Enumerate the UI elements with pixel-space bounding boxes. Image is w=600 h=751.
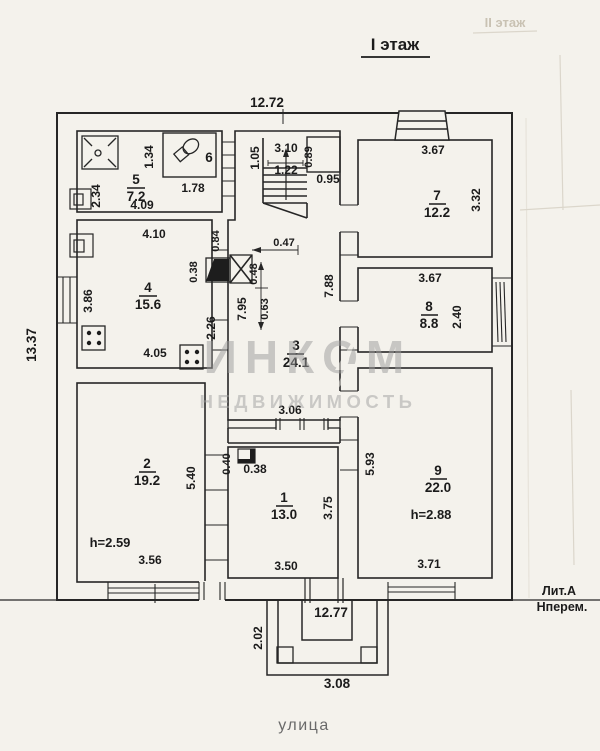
dim-r6-left: 1.34 — [142, 145, 156, 169]
building-letter-label: Лит.А — [542, 584, 576, 598]
shower-tray — [82, 136, 118, 169]
dim-stair-closet: 0.95 — [316, 172, 340, 186]
room-7-number: 7 — [433, 188, 441, 203]
window-room9-bottom — [388, 582, 455, 600]
door-openings-right-wing — [338, 205, 360, 417]
sink-room5 — [70, 189, 91, 209]
room-9-number: 9 — [434, 463, 442, 478]
dim-r9-left: 5.93 — [363, 452, 377, 476]
dim-furnace-front: 0.38 — [188, 261, 200, 282]
dim-r1-bottom: 3.50 — [274, 559, 298, 573]
dim-overall-top: 12.72 — [250, 95, 284, 110]
dim-r2-bottom: 3.56 — [138, 553, 162, 567]
room-5-number: 5 — [132, 172, 140, 187]
dim-r8-right: 2.40 — [450, 305, 464, 329]
dim-r5-bottom: 4.09 — [130, 198, 154, 212]
dim-r4-left: 3.86 — [81, 289, 95, 313]
stove-symbol-1 — [82, 326, 105, 350]
dim-r8-top: 3.67 — [418, 271, 442, 285]
dim-furnace-side: 0.48 — [248, 263, 260, 284]
dim-r1-flue-h: 0.40 — [221, 453, 233, 474]
dim-r1-flue-w: 0.38 — [243, 462, 267, 476]
dim-stair-run: 1.22 — [274, 163, 298, 177]
dim-r3-left-wall: 7.95 — [235, 297, 249, 321]
dim-r7-top: 3.67 — [421, 143, 445, 157]
toilet — [173, 136, 202, 163]
room-9-area: 22.0 — [425, 480, 451, 495]
room-2-number: 2 — [143, 456, 151, 471]
street-label: улица — [278, 717, 329, 734]
room-1-area: 13.0 — [271, 507, 297, 522]
room-6-number: 6 — [205, 150, 213, 165]
dim-r3-right-wall: 7.88 — [322, 274, 336, 298]
porch-post-right — [361, 647, 377, 663]
opening-room1-bottom — [199, 581, 225, 601]
dim-stair-hall: 1.05 — [248, 146, 262, 170]
room-7-area: 12.2 — [424, 205, 450, 220]
dim-furnace-depth: 0.47 — [273, 237, 294, 249]
furnace — [206, 245, 298, 330]
dim-furnace-back: 0.63 — [259, 298, 271, 319]
room-2-area: 19.2 — [134, 473, 160, 488]
bleed-page-title: II этаж — [485, 15, 526, 30]
window-left-wall — [57, 277, 77, 323]
page-title: I этаж — [371, 35, 420, 54]
fixture-room4 — [70, 234, 93, 257]
scanned-floor-plan-sheet: I этаж II этаж 12.72 13.37 2.34 5 7.2 4.… — [0, 0, 600, 751]
dim-r9-bottom: 3.71 — [417, 557, 441, 571]
dim-stair-side: 0.89 — [303, 146, 315, 167]
dim-porch-width: 3.08 — [324, 676, 351, 691]
room-2-ceiling-height: h=2.59 — [90, 535, 131, 550]
watermark-brand: ИНКОМ — [204, 331, 412, 383]
room-4-number: 4 — [144, 280, 152, 295]
dim-r6-bottom: 1.78 — [181, 181, 205, 195]
watermark-subtitle: НЕДВИЖИМОСТЬ — [200, 391, 417, 412]
dim-stair-top: 3.10 — [274, 141, 298, 155]
dim-r2-right: 5.40 — [184, 466, 198, 490]
room-4-area: 15.6 — [135, 297, 162, 312]
room-8-area: 8.8 — [420, 316, 439, 331]
room1-flue — [238, 449, 255, 463]
floor-plan-drawing: I этаж II этаж 12.72 13.37 2.34 5 7.2 4.… — [0, 0, 600, 751]
dim-r4-top: 4.10 — [142, 227, 166, 241]
room-8-number: 8 — [425, 299, 433, 314]
dim-r4-bottom: 4.05 — [143, 346, 167, 360]
dim-overall-left: 13.37 — [24, 328, 39, 362]
porch-post-left — [277, 647, 293, 663]
room-9-ceiling-height: h=2.88 — [411, 507, 452, 522]
dim-r1-right: 3.75 — [321, 496, 335, 520]
watermark: ИНКОМ НЕДВИЖИМОСТЬ — [200, 331, 417, 412]
roof-flue — [395, 111, 449, 140]
dim-overall-bottom: 12.77 — [314, 605, 348, 620]
corridor — [228, 418, 340, 443]
dim-r5-left: 2.34 — [89, 184, 103, 208]
dim-furnace-wall: 0.84 — [210, 229, 222, 251]
room-1-number: 1 — [280, 490, 288, 505]
dim-porch-depth: 2.02 — [251, 626, 265, 650]
building-note-label: Нперем. — [537, 600, 588, 614]
stove-symbol-2 — [180, 345, 203, 369]
dim-r7-right: 3.32 — [469, 188, 483, 212]
window-room8-right — [492, 278, 512, 346]
